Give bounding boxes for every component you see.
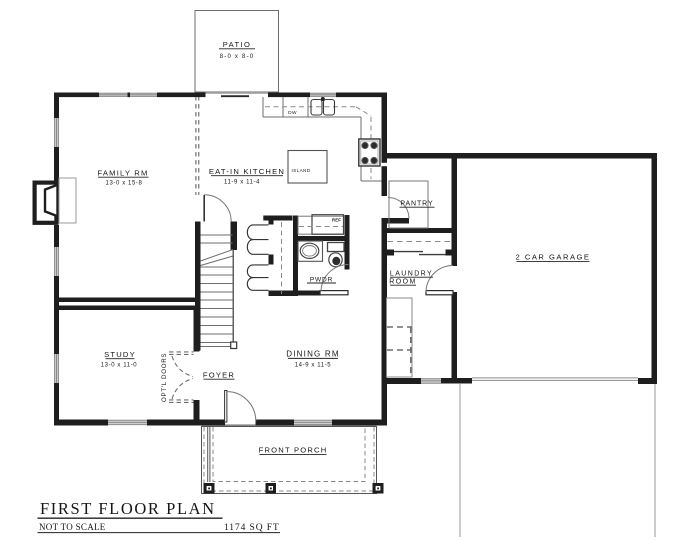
svg-text:STUDY: STUDY: [104, 350, 136, 359]
svg-text:PANTRY: PANTRY: [400, 201, 433, 208]
svg-text:NOT TO SCALE: NOT TO SCALE: [39, 522, 106, 532]
svg-text:FAMILY RM: FAMILY RM: [97, 169, 148, 178]
svg-text:PATIO: PATIO: [223, 40, 251, 49]
svg-text:13-0 x 11-0: 13-0 x 11-0: [101, 363, 138, 369]
svg-text:2 CAR GARAGE: 2 CAR GARAGE: [516, 253, 591, 262]
svg-text:1174 SQ FT: 1174 SQ FT: [224, 523, 280, 533]
svg-text:ISLAND: ISLAND: [292, 168, 311, 173]
svg-text:DW: DW: [288, 110, 297, 116]
svg-text:LAUNDRY: LAUNDRY: [390, 271, 433, 278]
svg-text:14-9 x 11-5: 14-9 x 11-5: [295, 363, 332, 369]
svg-text:11-9 x 11-4: 11-9 x 11-4: [224, 180, 260, 186]
svg-text:PWDR: PWDR: [310, 277, 333, 284]
svg-text:DINING RM: DINING RM: [286, 350, 339, 359]
svg-text:13-0 x 15-8: 13-0 x 15-8: [106, 181, 143, 187]
svg-text:FOYER: FOYER: [203, 371, 235, 380]
svg-text:OPT'L DOORS: OPT'L DOORS: [161, 353, 168, 402]
svg-text:REF: REF: [332, 218, 341, 223]
svg-text:8-0 x 8-0: 8-0 x 8-0: [220, 54, 254, 60]
svg-text:ROOM: ROOM: [389, 279, 416, 286]
svg-text:EAT-IN KITCHEN: EAT-IN KITCHEN: [209, 167, 285, 176]
svg-text:FIRST FLOOR PLAN: FIRST FLOOR PLAN: [40, 499, 216, 518]
svg-text:FRONT PORCH: FRONT PORCH: [259, 446, 328, 455]
